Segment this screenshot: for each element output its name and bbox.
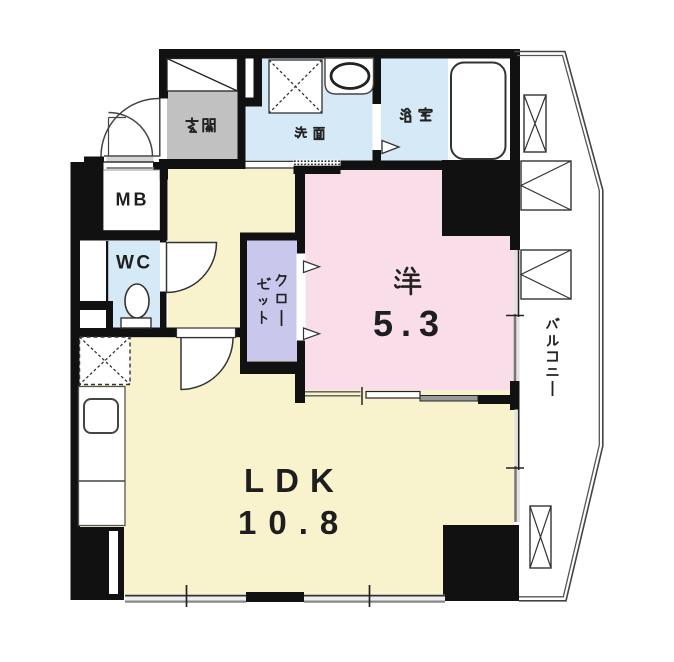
svg-text:WC: WC [116,253,153,274]
svg-text:MB: MB [116,190,150,210]
svg-text:LDK: LDK [244,462,345,499]
svg-text:10.8: 10.8 [238,504,350,541]
svg-text:5.3: 5.3 [373,303,447,344]
